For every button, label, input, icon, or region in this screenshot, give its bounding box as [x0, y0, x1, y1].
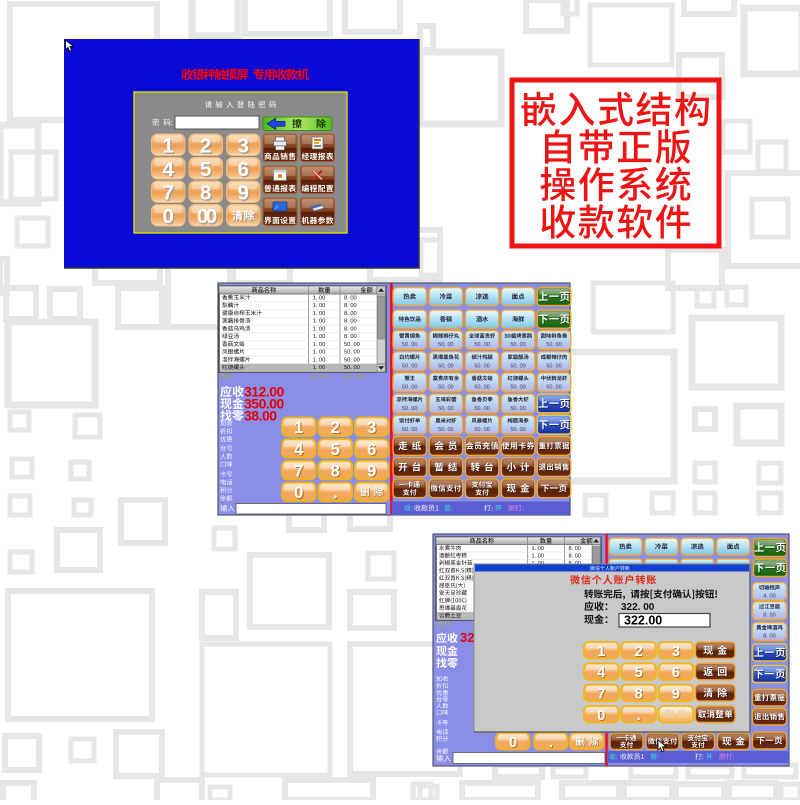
svg-text:4: 4	[163, 158, 175, 181]
svg-text:50. 00: 50. 00	[510, 427, 526, 433]
svg-text:15. 00: 15. 00	[310, 374, 328, 381]
svg-text:50. 00: 50. 00	[344, 342, 360, 348]
svg-text:50. 00: 50. 00	[438, 363, 454, 369]
svg-text:50. 00: 50. 00	[546, 385, 562, 391]
svg-text:1. 00: 1. 00	[313, 326, 326, 332]
svg-text:50. 00: 50. 00	[344, 357, 360, 363]
svg-text:00: 00	[197, 205, 217, 228]
svg-text:312. 00: 312. 00	[343, 374, 365, 381]
svg-text:50. 00: 50. 00	[510, 342, 526, 348]
svg-text:.: .	[549, 735, 553, 751]
svg-text:1. 00: 1. 00	[313, 295, 326, 301]
svg-text:50. 00: 50. 00	[474, 427, 490, 433]
svg-text:0: 0	[294, 484, 303, 502]
svg-text:50. 00: 50. 00	[438, 406, 454, 412]
svg-text:50. 00: 50. 00	[402, 342, 418, 348]
svg-text:3: 3	[367, 419, 376, 437]
svg-text:1. 00: 1. 00	[532, 553, 544, 559]
svg-text:7: 7	[163, 182, 174, 205]
svg-text:1. 00: 1. 00	[532, 546, 544, 552]
svg-text:8. 00: 8. 00	[569, 553, 581, 559]
svg-text:322.00: 322.00	[624, 614, 662, 628]
svg-text:8. 00: 8. 00	[344, 303, 357, 309]
svg-text:3: 3	[238, 135, 249, 158]
svg-text:50. 00: 50. 00	[344, 365, 360, 371]
svg-text:1. 00: 1. 00	[313, 365, 326, 371]
svg-text:4. 00: 4. 00	[763, 593, 775, 599]
svg-text:50. 00: 50. 00	[402, 427, 418, 433]
svg-text:1. 00: 1. 00	[313, 303, 326, 309]
svg-text:50. 00: 50. 00	[438, 385, 454, 391]
svg-text:0: 0	[597, 708, 605, 724]
svg-text:32: 32	[460, 630, 474, 645]
svg-text:5: 5	[331, 441, 340, 459]
svg-text:50. 00: 50. 00	[438, 427, 454, 433]
svg-text:1. 00: 1. 00	[313, 319, 326, 325]
svg-text:6: 6	[238, 158, 249, 181]
svg-text:7: 7	[294, 463, 303, 481]
svg-text:50. 00: 50. 00	[510, 363, 526, 369]
svg-text:50. 00: 50. 00	[402, 363, 418, 369]
svg-text:4: 4	[294, 441, 304, 459]
svg-text:0: 0	[509, 735, 517, 751]
svg-text:1. 00: 1. 00	[313, 334, 326, 340]
svg-text:50. 00: 50. 00	[474, 385, 490, 391]
svg-text:1: 1	[597, 644, 605, 660]
svg-text:50. 00: 50. 00	[438, 342, 454, 348]
svg-text:8. 00: 8. 00	[569, 546, 581, 552]
svg-text:4: 4	[597, 665, 605, 681]
svg-text:8. 00: 8. 00	[763, 633, 775, 639]
svg-text:50. 00: 50. 00	[344, 350, 360, 356]
svg-text:8: 8	[200, 182, 211, 205]
svg-text:1: 1	[163, 135, 174, 158]
svg-text:50. 00: 50. 00	[510, 385, 526, 391]
svg-text:9: 9	[238, 182, 249, 205]
svg-text:7: 7	[597, 687, 605, 703]
svg-text:50. 00: 50. 00	[510, 406, 526, 412]
svg-text:8: 8	[331, 463, 340, 481]
svg-text:2: 2	[200, 135, 211, 158]
svg-text:50. 00: 50. 00	[402, 385, 418, 391]
svg-text:50. 00: 50. 00	[474, 406, 490, 412]
svg-text:9: 9	[672, 687, 680, 703]
svg-text:5: 5	[200, 158, 211, 181]
svg-text:50. 00: 50. 00	[546, 363, 562, 369]
svg-text:.: .	[333, 484, 338, 502]
svg-text:5: 5	[635, 665, 643, 681]
svg-text:1. 00: 1. 00	[313, 357, 326, 363]
svg-text:1. 00: 1. 00	[313, 350, 326, 356]
svg-text:1. 00: 1. 00	[313, 342, 326, 348]
svg-text:8. 00: 8. 00	[763, 612, 775, 618]
svg-text:9: 9	[367, 463, 376, 481]
svg-text:50. 00: 50. 00	[474, 342, 490, 348]
svg-text:8: 8	[635, 687, 643, 703]
svg-text:6: 6	[672, 665, 680, 681]
svg-text:8. 00: 8. 00	[344, 334, 357, 340]
svg-text:8. 00: 8. 00	[344, 311, 357, 317]
svg-text:8. 00: 8. 00	[344, 319, 357, 325]
svg-text:3: 3	[672, 644, 680, 660]
svg-text:8. 00: 8. 00	[344, 326, 357, 332]
svg-text:0: 0	[163, 205, 174, 228]
svg-text:1. 00: 1. 00	[313, 311, 326, 317]
svg-text:50. 00: 50. 00	[402, 406, 418, 412]
svg-text:50. 00: 50. 00	[474, 363, 490, 369]
svg-text:1: 1	[294, 419, 303, 437]
svg-text:8. 00: 8. 00	[344, 295, 357, 301]
svg-text:2: 2	[635, 644, 643, 660]
svg-text:50. 00: 50. 00	[546, 342, 562, 348]
svg-text:.: .	[637, 708, 641, 724]
svg-text:38.00: 38.00	[244, 408, 277, 424]
svg-text:6: 6	[367, 441, 376, 459]
svg-text:322. 00: 322. 00	[621, 602, 655, 613]
svg-text:2: 2	[331, 419, 340, 437]
